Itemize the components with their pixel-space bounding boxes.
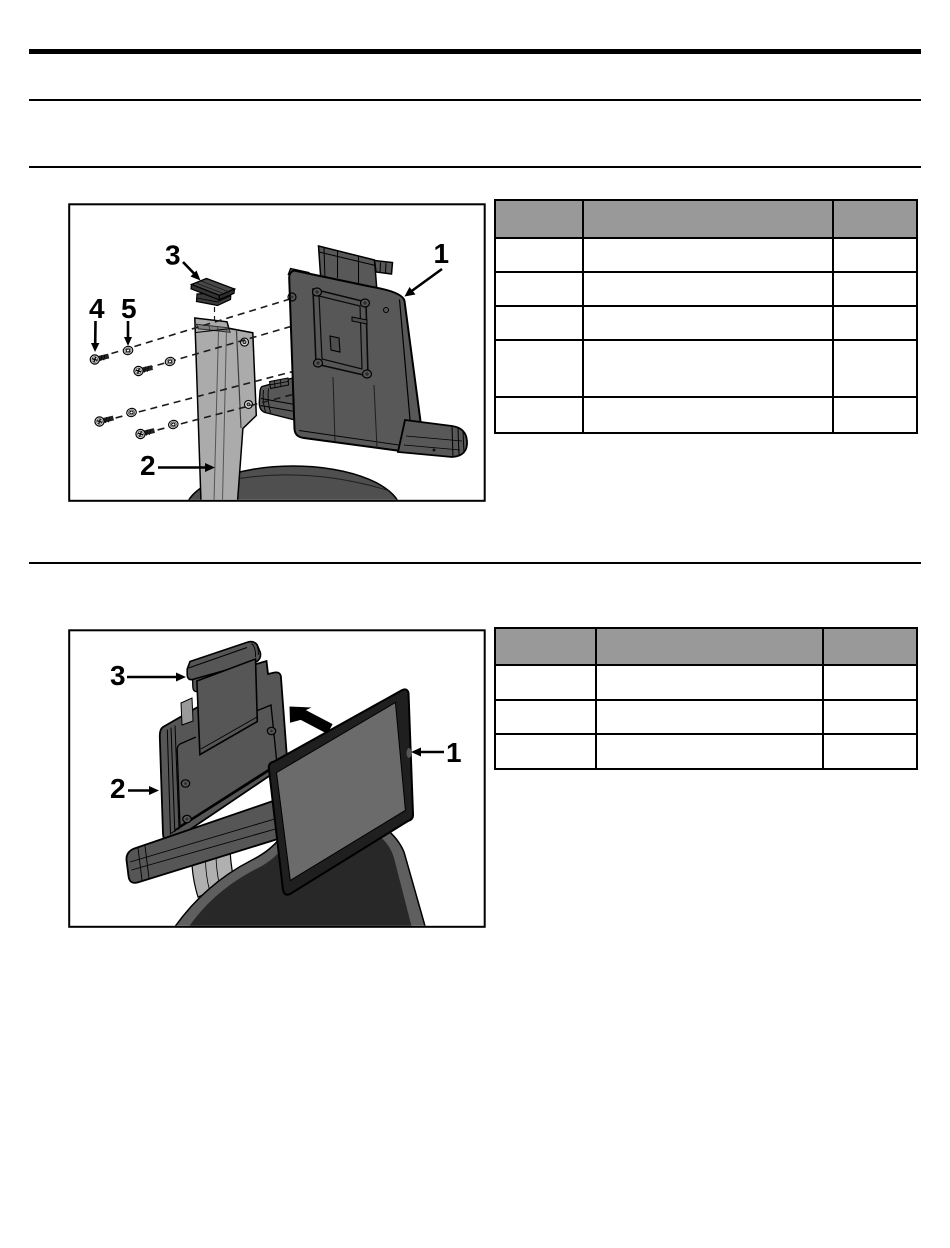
svg-text:1: 1 — [434, 238, 450, 269]
svg-text:3: 3 — [165, 240, 181, 271]
svg-text:1: 1 — [446, 737, 462, 768]
svg-text:5: 5 — [121, 293, 137, 324]
svg-text:4: 4 — [89, 293, 105, 324]
svg-text:2: 2 — [140, 450, 156, 481]
svg-text:3: 3 — [110, 660, 126, 691]
svg-text:2: 2 — [110, 773, 126, 804]
